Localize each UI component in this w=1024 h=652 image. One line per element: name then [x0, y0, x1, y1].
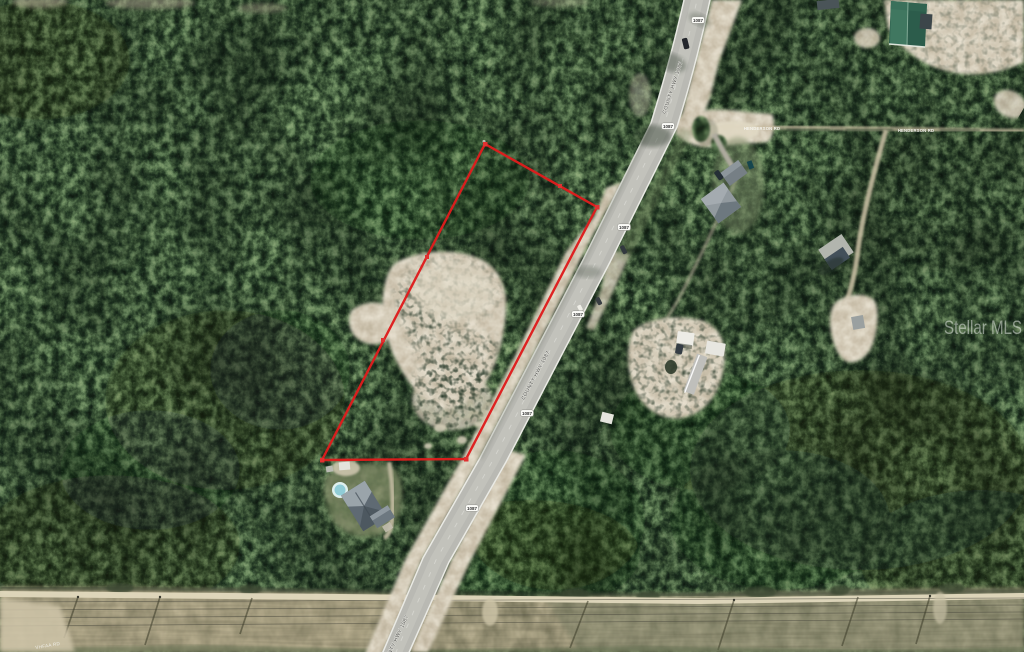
svg-text:1087: 1087 — [619, 225, 630, 230]
svg-text:1087: 1087 — [467, 506, 478, 511]
svg-text:1087: 1087 — [573, 312, 584, 317]
svg-text:1087: 1087 — [663, 124, 674, 129]
svg-text:HENDERSON RD: HENDERSON RD — [744, 126, 780, 131]
svg-text:1087: 1087 — [522, 411, 533, 416]
svg-text:HENDERSON RD: HENDERSON RD — [898, 128, 934, 133]
svg-text:1087: 1087 — [693, 18, 704, 23]
svg-text:Stellar MLS: Stellar MLS — [944, 317, 1022, 339]
